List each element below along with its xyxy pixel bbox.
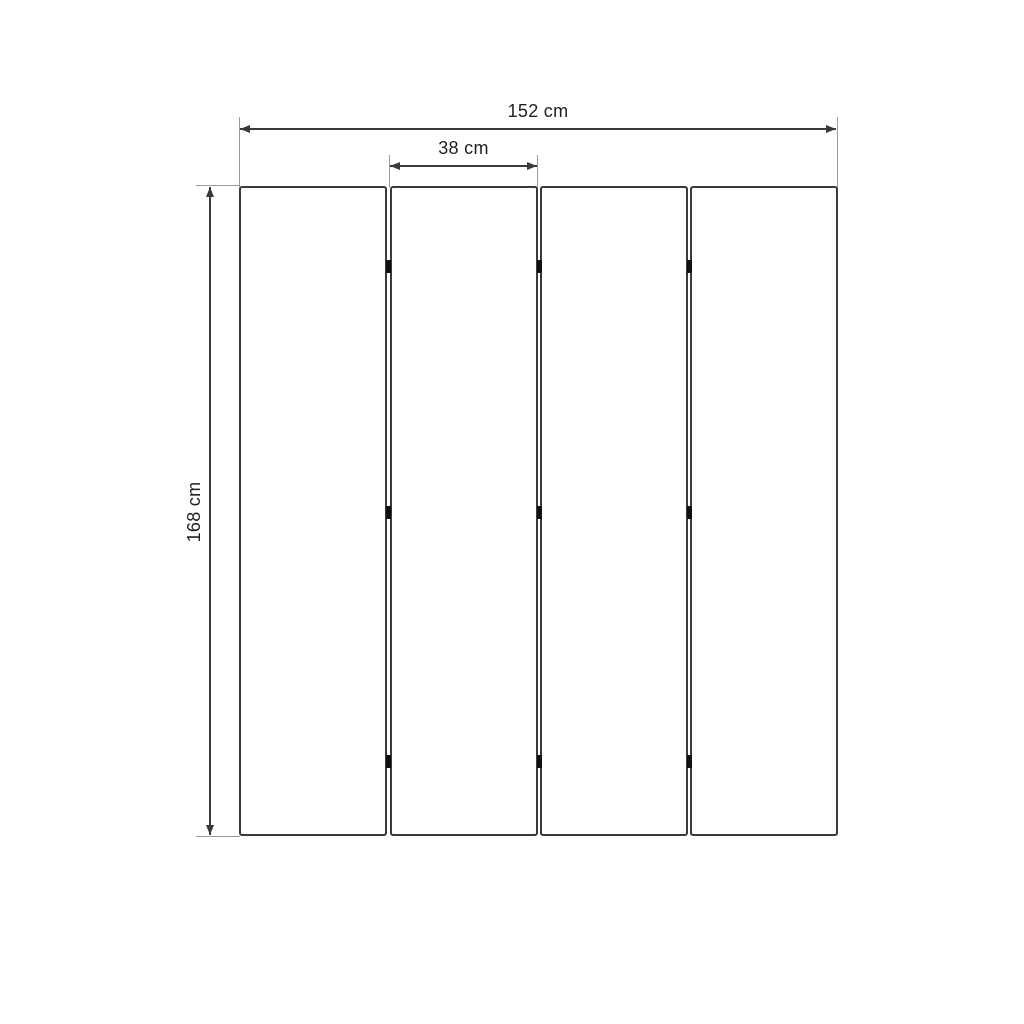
extension-line [389, 155, 390, 187]
hinge-icon [687, 755, 692, 768]
hinge-icon [687, 260, 692, 273]
height-dimension-line [209, 187, 211, 835]
height-label: 168 cm [183, 464, 205, 560]
hinge-icon [386, 755, 391, 768]
arrowhead-right-icon [826, 125, 836, 133]
hinge-icon [537, 506, 542, 519]
arrowhead-down-icon [206, 825, 214, 835]
arrowhead-right-icon [527, 162, 537, 170]
arrowhead-left-icon [390, 162, 400, 170]
panel-width-label: 38 cm [390, 137, 537, 159]
extension-line [537, 155, 538, 187]
extension-line [837, 117, 838, 187]
hinge-icon [386, 260, 391, 273]
divider-panel-4 [690, 186, 838, 836]
divider-panel-3 [540, 186, 688, 836]
hinge-icon [537, 755, 542, 768]
hinge-icon [386, 506, 391, 519]
divider-panel-1 [239, 186, 387, 836]
panel-width-dimension-line [390, 165, 537, 167]
extension-line [239, 117, 240, 187]
total-width-label: 152 cm [240, 100, 836, 122]
total-width-dimension-line [240, 128, 836, 130]
dimension-diagram: 152 cm 38 cm 168 cm [0, 0, 1024, 1024]
arrowhead-left-icon [240, 125, 250, 133]
hinge-icon [537, 260, 542, 273]
divider-panel-2 [390, 186, 538, 836]
extension-line [196, 836, 240, 837]
hinge-icon [687, 506, 692, 519]
arrowhead-up-icon [206, 187, 214, 197]
extension-line [196, 185, 240, 186]
